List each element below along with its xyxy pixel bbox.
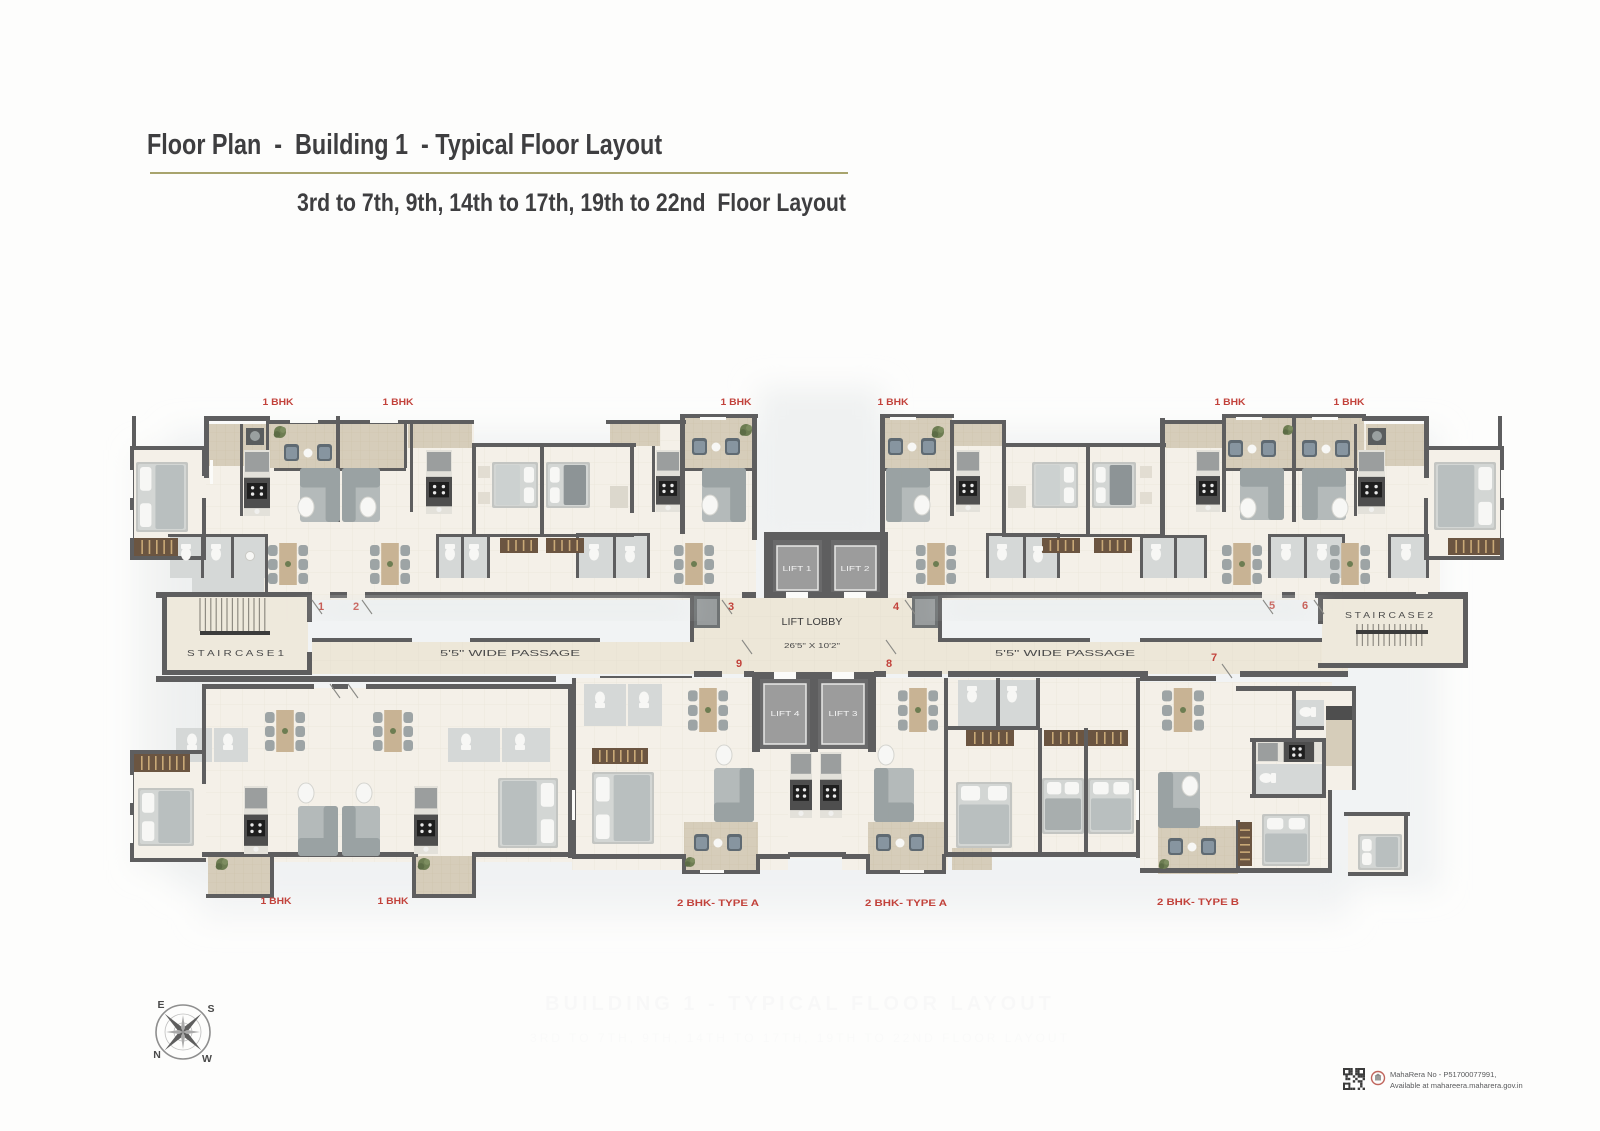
svg-text:W: W: [202, 1053, 212, 1065]
svg-text:2 BHK- TYPE A: 2 BHK- TYPE A: [677, 898, 760, 908]
svg-text:9: 9: [736, 658, 742, 670]
svg-text:1 BHK: 1 BHK: [263, 397, 295, 407]
svg-text:1 BHK: 1 BHK: [378, 896, 410, 906]
svg-text:3: 3: [728, 601, 734, 613]
svg-text:S T A I R C A S E 1: S T A I R C A S E 1: [187, 648, 284, 658]
svg-text:1 BHK: 1 BHK: [721, 397, 753, 407]
svg-text:2 BHK- TYPE A: 2 BHK- TYPE A: [865, 898, 948, 908]
svg-text:2 BHK- TYPE B: 2 BHK- TYPE B: [1157, 897, 1240, 907]
svg-text:BUILDING 1 - TYPICAL FLOOR L: BUILDING 1 - TYPICAL FLOOR LAYOUT: [545, 993, 1055, 1015]
svg-text:N: N: [153, 1049, 161, 1061]
svg-text:5'5" WIDE PASSAGE: 5'5" WIDE PASSAGE: [995, 648, 1136, 658]
svg-text:8: 8: [886, 658, 892, 670]
svg-text:Available at mahareera.maharer: Available at mahareera.maharera.gov.in: [1390, 1081, 1523, 1090]
svg-text:MahaRera No - P51700077991,: MahaRera No - P51700077991,: [1390, 1070, 1496, 1079]
svg-text:LIFT 1: LIFT 1: [783, 564, 812, 573]
svg-text:E: E: [157, 999, 164, 1011]
svg-text:S T A I R C A S E 2: S T A I R C A S E 2: [1345, 610, 1433, 620]
svg-text:S: S: [207, 1003, 214, 1015]
svg-text:7: 7: [1211, 652, 1217, 664]
svg-text:LIFT LOBBY: LIFT LOBBY: [782, 616, 843, 628]
svg-text:4: 4: [893, 601, 900, 613]
svg-text:3RD TO 7TH, 9TH, 14TH TO 17TH,: 3RD TO 7TH, 9TH, 14TH TO 17TH, 19TH TO 2…: [530, 1031, 1070, 1045]
svg-text:1 BHK: 1 BHK: [261, 896, 293, 906]
svg-text:26'5" X 10'2": 26'5" X 10'2": [784, 641, 840, 650]
svg-text:1 BHK: 1 BHK: [878, 397, 910, 407]
svg-text:1 BHK: 1 BHK: [1215, 397, 1247, 407]
svg-text:1 BHK: 1 BHK: [383, 397, 415, 407]
svg-text:5'5" WIDE PASSAGE: 5'5" WIDE PASSAGE: [440, 648, 581, 658]
svg-text:LIFT 3: LIFT 3: [829, 709, 858, 718]
svg-text:LIFT 4: LIFT 4: [771, 709, 800, 718]
svg-text:LIFT 2: LIFT 2: [841, 564, 870, 573]
svg-text:1 BHK: 1 BHK: [1334, 397, 1366, 407]
